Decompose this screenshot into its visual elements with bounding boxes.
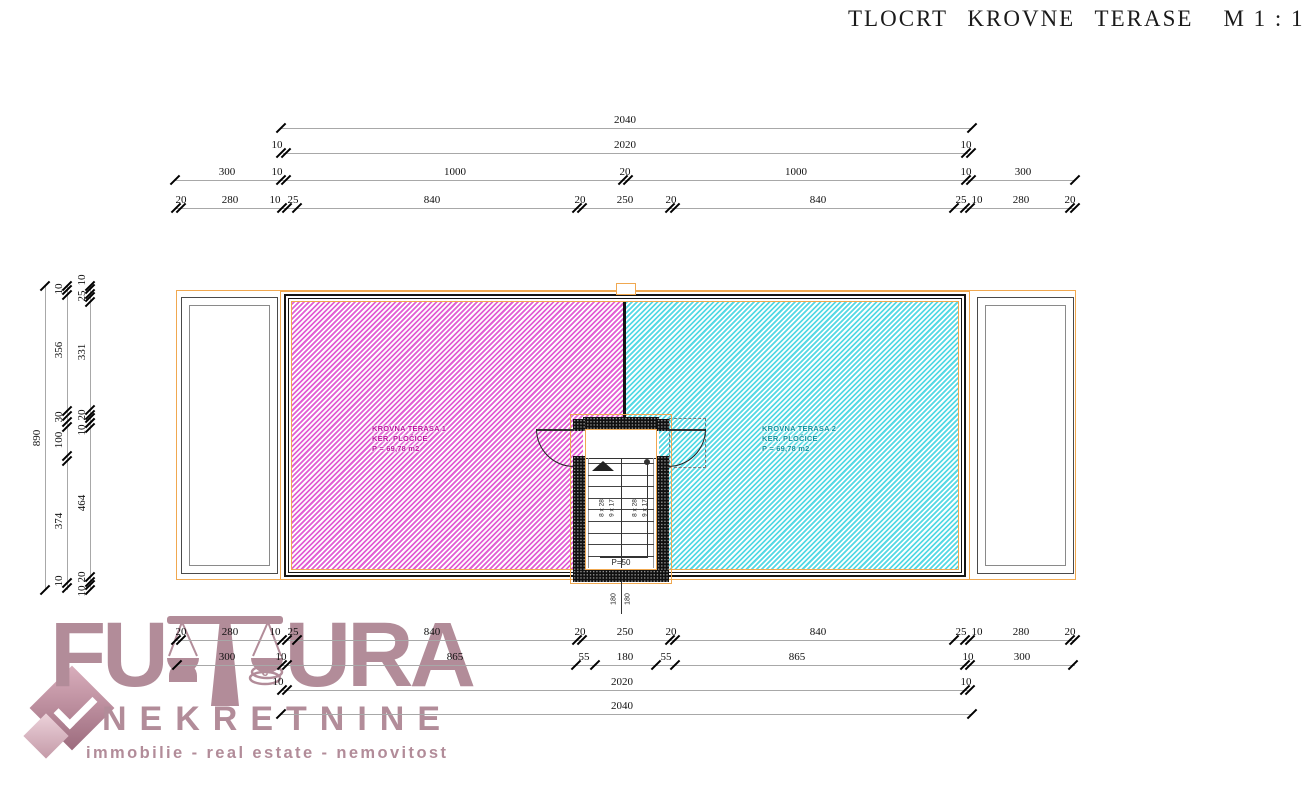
terrace1-label: KROVNA TERASA 1 KER. PLOČICE P = 69,78 m…	[372, 424, 446, 454]
stair-below-axis-line	[621, 582, 623, 614]
stairwell-wall-top	[583, 417, 659, 429]
stair-center-divider	[621, 458, 623, 568]
terrace1-area-value: P = 69,78 m2	[372, 444, 446, 454]
stair-right-flight-label-a: 8 x 28	[632, 499, 639, 517]
terrace2-area-value: P = 69,78 m2	[762, 444, 836, 454]
floor-plan-drawing: KROVNA TERASA 1 KER. PLOČICE P = 69,78 m…	[0, 0, 1305, 790]
stair-up-arrow-icon	[592, 461, 614, 471]
stair-right-flight-label-b: 9 x 17	[642, 499, 649, 517]
terrace1-material: KER. PLOČICE	[372, 434, 446, 444]
stair-landing-dimension: P=50	[612, 558, 631, 567]
title-text: TLOCRT KROVNE TERASE	[848, 6, 1193, 32]
stair-below-dim-left: 180	[611, 593, 618, 605]
stairwell-wall-bottom	[573, 570, 669, 582]
stair-left-flight-label-b: 9 x 17	[609, 499, 616, 517]
terrace1-name: KROVNA TERASA 1	[372, 424, 446, 434]
roof-notch	[616, 283, 636, 295]
drawing-title: TLOCRT KROVNE TERASE M 1 : 100	[848, 6, 1278, 32]
right-wing-inner-outline	[985, 305, 1066, 566]
left-wing-inner-outline	[189, 305, 270, 566]
stairwell-wall-left	[573, 456, 585, 582]
stairwell-wall-right	[657, 456, 669, 582]
terrace2-material: KER. PLOČICE	[762, 434, 836, 444]
title-scale: M 1 : 100	[1223, 6, 1305, 32]
stairwell-jamb-left	[573, 419, 585, 431]
terrace2-name: KROVNA TERASA 2	[762, 424, 836, 434]
floor-plan-page: FU € URA NE	[0, 0, 1305, 790]
stair-left-flight-label-a: 8 x 28	[599, 499, 606, 517]
terrace2-label: KROVNA TERASA 2 KER. PLOČICE P = 69,78 m…	[762, 424, 836, 454]
stair-below-dim-right: 180	[625, 593, 632, 605]
